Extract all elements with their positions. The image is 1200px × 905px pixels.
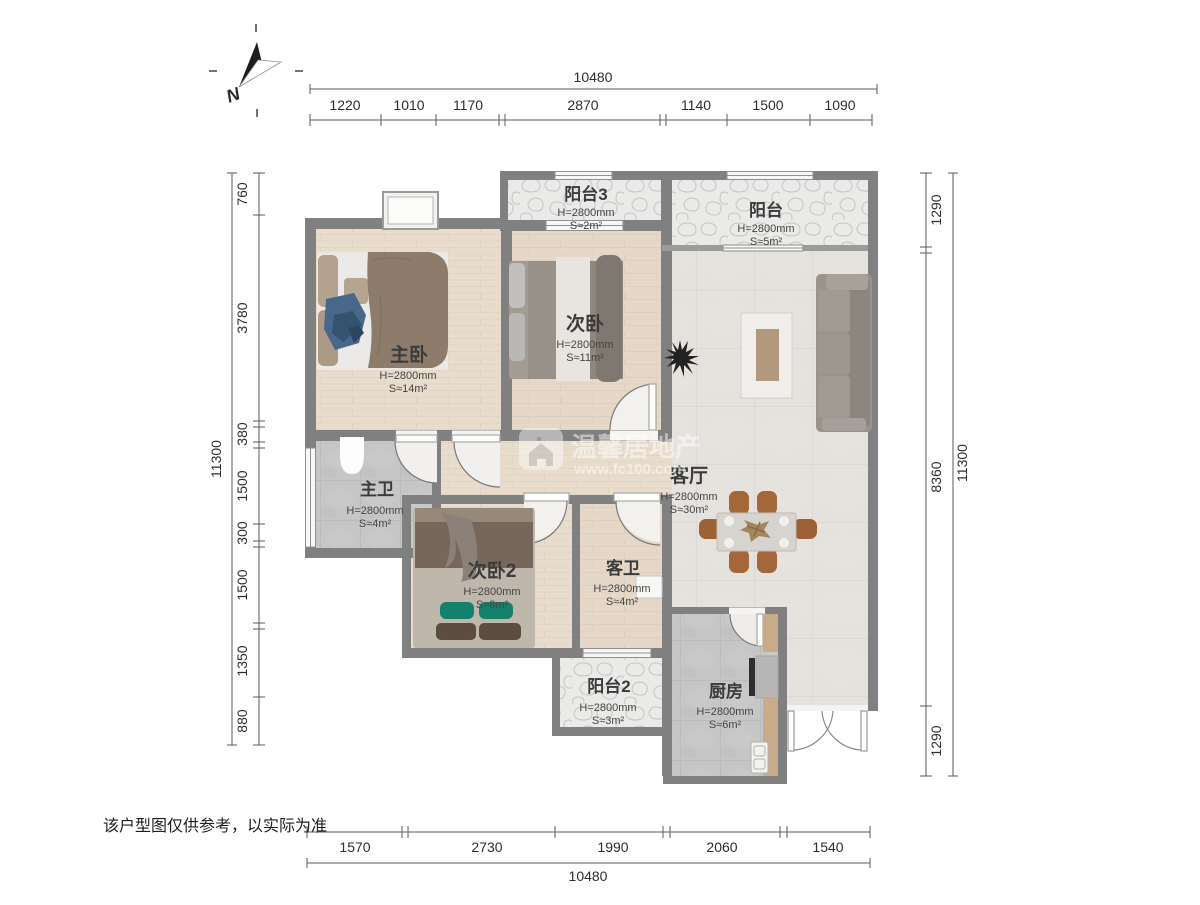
svg-text:1570: 1570 xyxy=(339,839,370,855)
svg-text:2730: 2730 xyxy=(471,839,502,855)
svg-text:1220: 1220 xyxy=(329,97,360,113)
svg-text:1090: 1090 xyxy=(824,97,855,113)
svg-text:S≈8m²: S≈8m² xyxy=(476,599,509,611)
svg-text:H=2800mm: H=2800mm xyxy=(379,370,436,382)
svg-text:1140: 1140 xyxy=(681,97,711,113)
svg-text:H=2800mm: H=2800mm xyxy=(557,207,614,219)
svg-text:H=2800mm: H=2800mm xyxy=(593,583,650,595)
svg-text:2870: 2870 xyxy=(567,97,598,113)
svg-text:厨房: 厨房 xyxy=(709,681,743,701)
svg-text:次卧2: 次卧2 xyxy=(468,559,517,582)
svg-text:H=2800mm: H=2800mm xyxy=(696,706,753,718)
svg-text:8360: 8360 xyxy=(928,461,944,492)
svg-text:H=2800mm: H=2800mm xyxy=(346,505,403,517)
svg-text:主卫: 主卫 xyxy=(360,479,394,499)
svg-text:760: 760 xyxy=(234,182,250,206)
svg-text:S≈5m²: S≈5m² xyxy=(750,236,783,248)
svg-text:2060: 2060 xyxy=(706,839,737,855)
svg-text:10480: 10480 xyxy=(569,868,608,884)
svg-text:1350: 1350 xyxy=(234,645,250,676)
svg-text:H=2800mm: H=2800mm xyxy=(579,702,636,714)
svg-text:阳台2: 阳台2 xyxy=(587,676,630,696)
svg-text:H=2800mm: H=2800mm xyxy=(463,586,520,598)
svg-text:温馨居地产: 温馨居地产 xyxy=(571,432,701,462)
svg-text:11300: 11300 xyxy=(208,440,224,478)
svg-text:S≈2m²: S≈2m² xyxy=(570,220,603,232)
svg-text:380: 380 xyxy=(234,422,250,446)
svg-text:3780: 3780 xyxy=(234,302,250,333)
svg-text:1500: 1500 xyxy=(234,470,250,501)
svg-text:H=2800mm: H=2800mm xyxy=(556,339,613,351)
svg-text:H=2800mm: H=2800mm xyxy=(660,491,717,503)
svg-text:11300: 11300 xyxy=(954,444,970,482)
svg-text:阳台3: 阳台3 xyxy=(564,184,607,204)
svg-text:S≈4m²: S≈4m² xyxy=(359,518,392,530)
svg-text:1170: 1170 xyxy=(453,97,483,113)
svg-text:S≈6m²: S≈6m² xyxy=(709,719,742,731)
svg-text:S≈30m²: S≈30m² xyxy=(670,504,709,516)
svg-text:阳台: 阳台 xyxy=(749,200,783,220)
svg-text:S≈3m²: S≈3m² xyxy=(592,715,625,727)
svg-text:该户型图仅供参考，以实际为准: 该户型图仅供参考，以实际为准 xyxy=(103,817,327,835)
svg-text:880: 880 xyxy=(234,709,250,733)
svg-text:S≈4m²: S≈4m² xyxy=(606,596,639,608)
svg-text:1990: 1990 xyxy=(597,839,628,855)
svg-text:1500: 1500 xyxy=(752,97,783,113)
svg-text:主卧: 主卧 xyxy=(390,344,428,366)
svg-text:S≈11m²: S≈11m² xyxy=(566,352,604,364)
svg-text:1500: 1500 xyxy=(234,569,250,600)
svg-text:S≈14m²: S≈14m² xyxy=(389,383,428,395)
svg-text:1290: 1290 xyxy=(928,725,944,756)
svg-text:H=2800mm: H=2800mm xyxy=(737,223,794,235)
svg-text:次卧: 次卧 xyxy=(566,312,604,335)
svg-text:300: 300 xyxy=(234,521,250,545)
svg-text:10480: 10480 xyxy=(574,69,613,85)
svg-text:1540: 1540 xyxy=(812,839,843,855)
svg-text:www.fc100.com: www.fc100.com xyxy=(573,461,686,478)
svg-text:1290: 1290 xyxy=(928,194,944,225)
svg-text:客卫: 客卫 xyxy=(605,558,640,578)
svg-text:1010: 1010 xyxy=(393,97,424,113)
